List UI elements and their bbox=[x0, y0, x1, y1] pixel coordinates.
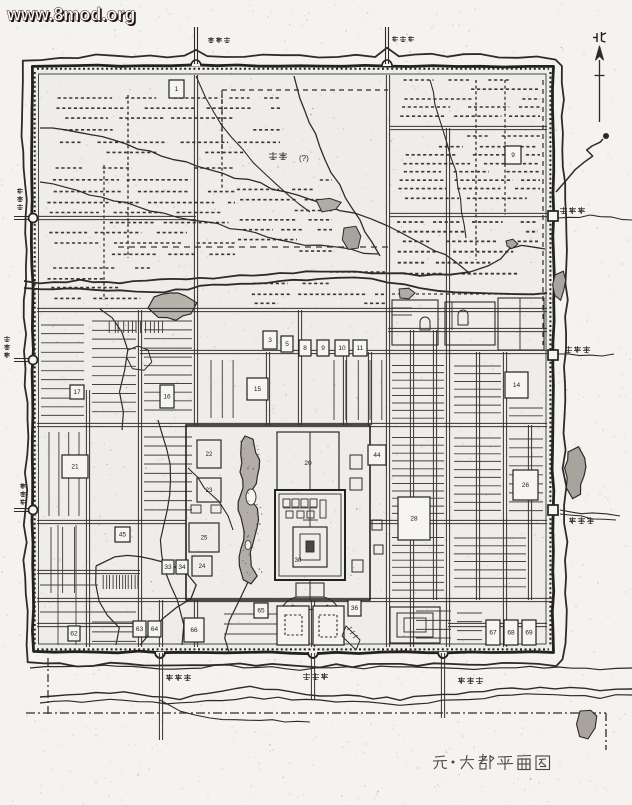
svg-text:(?): (?) bbox=[299, 154, 309, 163]
svg-text:11: 11 bbox=[357, 345, 364, 352]
svg-text:33: 33 bbox=[164, 564, 172, 571]
svg-text:34: 34 bbox=[178, 564, 186, 571]
svg-text:25: 25 bbox=[201, 536, 208, 542]
svg-text:www.8mod.org: www.8mod.org bbox=[6, 5, 135, 25]
svg-text:45: 45 bbox=[119, 532, 127, 539]
svg-text:36: 36 bbox=[351, 605, 359, 612]
svg-text:28: 28 bbox=[410, 516, 418, 523]
svg-text:65: 65 bbox=[257, 608, 265, 615]
svg-text:26: 26 bbox=[522, 482, 530, 489]
svg-text:44: 44 bbox=[373, 452, 381, 459]
svg-text:9: 9 bbox=[511, 152, 515, 159]
svg-text:3: 3 bbox=[268, 337, 272, 344]
svg-text:68: 68 bbox=[507, 630, 515, 637]
svg-text:24: 24 bbox=[199, 564, 206, 570]
svg-text:69: 69 bbox=[525, 630, 533, 637]
svg-text:67: 67 bbox=[489, 630, 497, 637]
svg-text:63: 63 bbox=[136, 626, 144, 633]
svg-text:21: 21 bbox=[71, 464, 79, 471]
svg-text:1: 1 bbox=[175, 86, 179, 93]
svg-text:14: 14 bbox=[513, 382, 521, 389]
svg-text:5: 5 bbox=[285, 341, 289, 348]
svg-text:23: 23 bbox=[206, 488, 213, 494]
svg-text:20: 20 bbox=[304, 460, 312, 467]
svg-text:15: 15 bbox=[254, 386, 262, 393]
svg-text:9: 9 bbox=[321, 345, 325, 352]
svg-text:16: 16 bbox=[163, 394, 171, 401]
svg-text:30: 30 bbox=[295, 558, 302, 564]
svg-text:8: 8 bbox=[303, 345, 307, 352]
svg-text:22: 22 bbox=[206, 452, 213, 458]
svg-text:64: 64 bbox=[151, 626, 159, 633]
svg-text:17: 17 bbox=[73, 389, 81, 396]
svg-text:62: 62 bbox=[70, 631, 78, 638]
svg-text:10: 10 bbox=[338, 345, 346, 352]
svg-text:66: 66 bbox=[190, 627, 198, 634]
